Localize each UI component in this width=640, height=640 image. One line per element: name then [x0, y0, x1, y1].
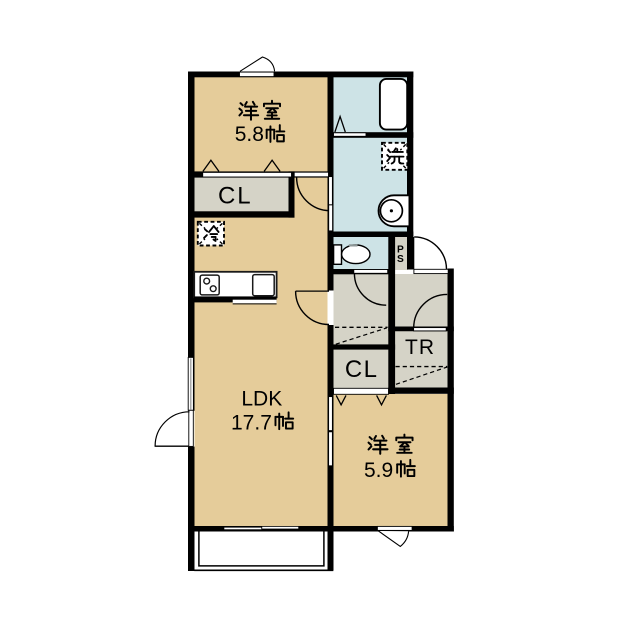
svg-text:CL: CL — [345, 356, 379, 383]
svg-text:5.9: 5.9 — [364, 459, 393, 482]
svg-text:S: S — [397, 254, 404, 265]
svg-text:LDK: LDK — [241, 388, 282, 411]
svg-text:5.8: 5.8 — [235, 123, 264, 146]
svg-text:CL: CL — [218, 182, 253, 209]
svg-text:TR: TR — [405, 336, 435, 359]
svg-text:17.7: 17.7 — [231, 411, 272, 434]
